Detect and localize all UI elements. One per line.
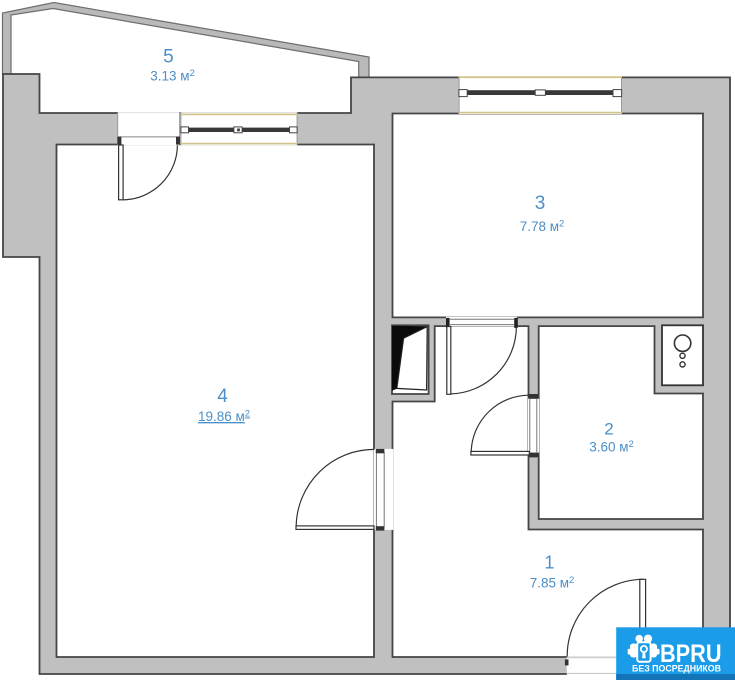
svg-text:7.85 м2: 7.85 м2	[530, 575, 575, 591]
svg-text:5: 5	[163, 47, 174, 68]
svg-text:2: 2	[604, 419, 613, 438]
svg-text:3.60 м2: 3.60 м2	[589, 439, 634, 455]
svg-text:БЕЗ ПОСРЕДНИКОВ: БЕЗ ПОСРЕДНИКОВ	[632, 664, 721, 675]
svg-text:7.78 м2: 7.78 м2	[520, 219, 565, 235]
svg-text:3.13 м2: 3.13 м2	[150, 68, 195, 84]
svg-text:19.86 м2: 19.86 м2	[198, 409, 250, 425]
svg-text:4: 4	[217, 386, 228, 407]
svg-text:3: 3	[535, 193, 546, 214]
svg-text:1: 1	[544, 552, 554, 572]
